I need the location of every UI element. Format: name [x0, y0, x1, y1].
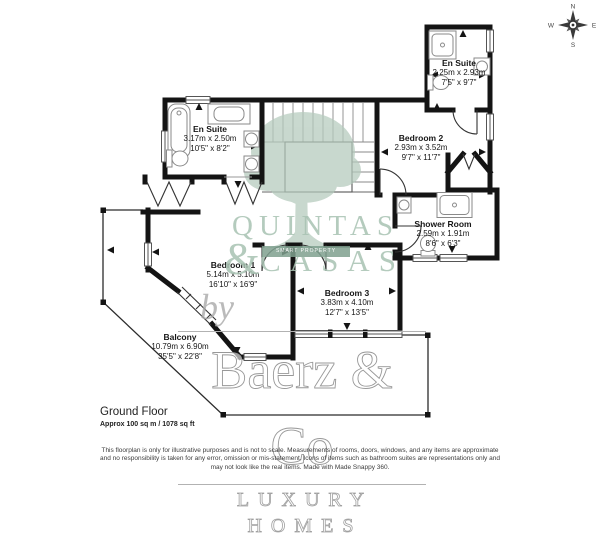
- room-dim-imperial: 7'5" x 9'7": [433, 78, 486, 88]
- room-dim-metric: 3.83m x 4.10m: [321, 298, 374, 308]
- brand-tagline: LUXURY HOMES: [178, 487, 426, 539]
- disclaimer: This floorplan is only for illustrative …: [70, 447, 530, 472]
- room-name: Bedroom 2: [395, 133, 448, 143]
- room-label-shower-room: Shower Room 2.59m x 1.91m 8'6" x 6'3": [414, 219, 471, 248]
- room-label-ensuite-left: En Suite 3.17m x 2.50m 10'5" x 8'2": [184, 124, 237, 153]
- disclaimer-line-3: may not look like the real items. Made w…: [70, 464, 530, 472]
- floor-title: Ground Floor: [100, 406, 168, 418]
- compass-s-label: S: [571, 42, 576, 49]
- disclaimer-line-1: This floorplan is only for illustrative …: [70, 447, 530, 455]
- compass-rose: N S W E: [548, 4, 597, 50]
- room-name: Shower Room: [414, 219, 471, 229]
- shower-icon: [437, 193, 472, 218]
- room-label-bedroom-2: Bedroom 2 2.93m x 3.52m 9'7" x 11'7": [395, 133, 448, 162]
- compass-n-label: N: [571, 4, 576, 11]
- room-dim-metric: 10.79m x 6.90m: [151, 342, 208, 352]
- room-name: En Suite: [184, 124, 237, 134]
- room-label-ensuite-top: En Suite 2.25m x 2.93m 7'5" x 9'7": [433, 58, 486, 87]
- room-dim-metric: 2.25m x 2.93m: [433, 68, 486, 78]
- room-dim-imperial: 12'7" x 13'5": [321, 308, 374, 318]
- room-dim-metric: 2.93m x 3.52m: [395, 143, 448, 153]
- shower-icon: [429, 31, 456, 59]
- room-dim-imperial: 10'5" x 8'2": [184, 144, 237, 154]
- room-dim-imperial: 16'10" x 16'9": [207, 280, 260, 290]
- room-label-bedroom-3: Bedroom 3 3.83m x 4.10m 12'7" x 13'5": [321, 288, 374, 317]
- compass-e-label: E: [592, 23, 597, 30]
- room-name: Bedroom 3: [321, 288, 374, 298]
- sink-icon: [397, 197, 411, 213]
- room-dim-imperial: 8'6" x 6'3": [414, 239, 471, 249]
- room-name: En Suite: [433, 58, 486, 68]
- floorplan-drawing: N S W E: [0, 0, 600, 474]
- room-label-balcony: Balcony 10.79m x 6.90m 35'5" x 22'8": [151, 332, 208, 361]
- room-label-bedroom-1: Bedroom 1 5.14m x 5.10m 16'10" x 16'9": [207, 260, 260, 289]
- brand-rule-bottom: [178, 484, 426, 485]
- floor-area: Approx 100 sq m / 1078 sq ft: [100, 421, 195, 428]
- room-dim-metric: 3.17m x 2.50m: [184, 134, 237, 144]
- disclaimer-line-2: and no responsibility is taken for any e…: [70, 455, 530, 463]
- room-dim-imperial: 9'7" x 11'7": [395, 153, 448, 163]
- room-dim-imperial: 35'5" x 22'8": [151, 352, 208, 362]
- vanity-icon: [208, 104, 250, 124]
- room-name: Balcony: [151, 332, 208, 342]
- room-dim-metric: 2.59m x 1.91m: [414, 229, 471, 239]
- room-dim-metric: 5.14m x 5.10m: [207, 270, 260, 280]
- compass-w-label: W: [548, 23, 555, 30]
- room-name: Bedroom 1: [207, 260, 260, 270]
